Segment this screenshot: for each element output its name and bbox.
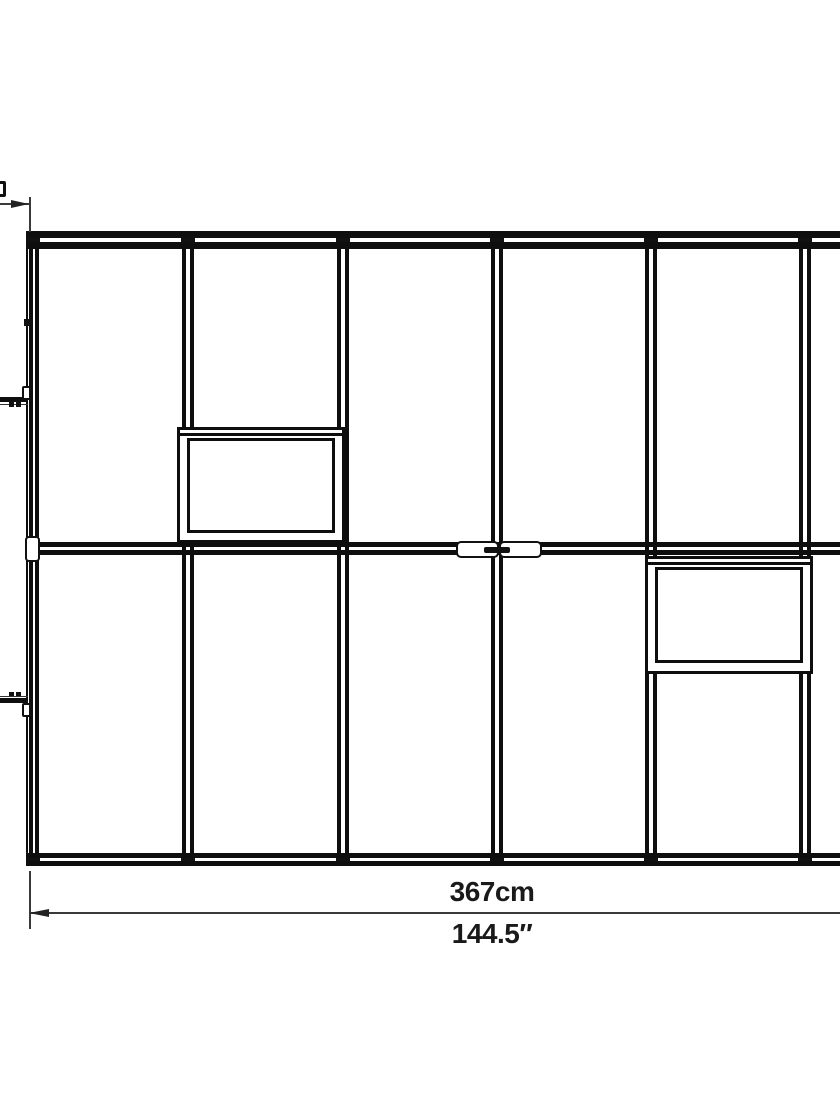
mullion-5-right-line	[807, 249, 811, 854]
joint-nub	[181, 238, 195, 242]
extension-line	[29, 197, 31, 232]
dimension-line	[29, 912, 840, 914]
joint-nub	[336, 238, 350, 242]
rail-end-connector-plate	[25, 536, 40, 562]
hinge-tooth	[16, 402, 21, 407]
roof-vent-upper-top-bar	[177, 433, 345, 436]
frame-middle-rail-lower	[26, 550, 840, 555]
joint-nub	[336, 858, 350, 861]
mullion-4-right-line	[653, 249, 657, 854]
hinge-tab	[22, 386, 31, 400]
joint-nub	[644, 238, 658, 242]
mullion-2-right-line	[345, 249, 349, 854]
hinge-tooth	[9, 402, 14, 407]
roof-vent-lower-pane	[655, 567, 803, 663]
dimension-label-metric: 367cm	[450, 876, 535, 908]
roof-vent-upper-pane	[187, 438, 335, 533]
joint-nub	[181, 858, 195, 861]
joint-nub	[490, 238, 504, 242]
hinge-arm-line	[0, 404, 28, 405]
ridge-center-latch	[484, 547, 510, 553]
joint-nub	[644, 858, 658, 861]
mullion-5-left-line	[799, 249, 803, 854]
mullion-4-left-line	[645, 249, 649, 854]
left-edge-clip	[24, 319, 32, 326]
joint-nub	[26, 858, 40, 861]
drawing-canvas: 367cm 144.5″	[0, 0, 840, 1120]
joint-nub	[490, 858, 504, 861]
dimension-arrow-icon	[11, 200, 29, 208]
hinge-tab	[22, 703, 31, 717]
frame-top-chord-outer	[26, 231, 840, 238]
mullion-2-left-line	[337, 249, 341, 854]
frame-bottom-chord-outer	[26, 861, 840, 866]
frame-middle-rail-upper	[26, 542, 840, 547]
frame-bottom-chord-inner	[26, 853, 840, 858]
joint-nub	[798, 238, 812, 242]
dimension-arrow-icon	[29, 909, 49, 917]
cropped-dimension-text-fragment	[0, 181, 6, 197]
frame-top-chord-inner	[26, 242, 840, 249]
mullion-1-left-line	[182, 249, 186, 854]
joint-nub	[798, 858, 812, 861]
joint-nub	[26, 238, 40, 242]
extension-line	[29, 871, 31, 929]
roof-vent-lower-top-bar	[645, 562, 813, 565]
dimension-label-imperial: 144.5″	[452, 918, 532, 950]
hinge-arm-line	[0, 696, 28, 697]
mullion-1-right-line	[190, 249, 194, 854]
